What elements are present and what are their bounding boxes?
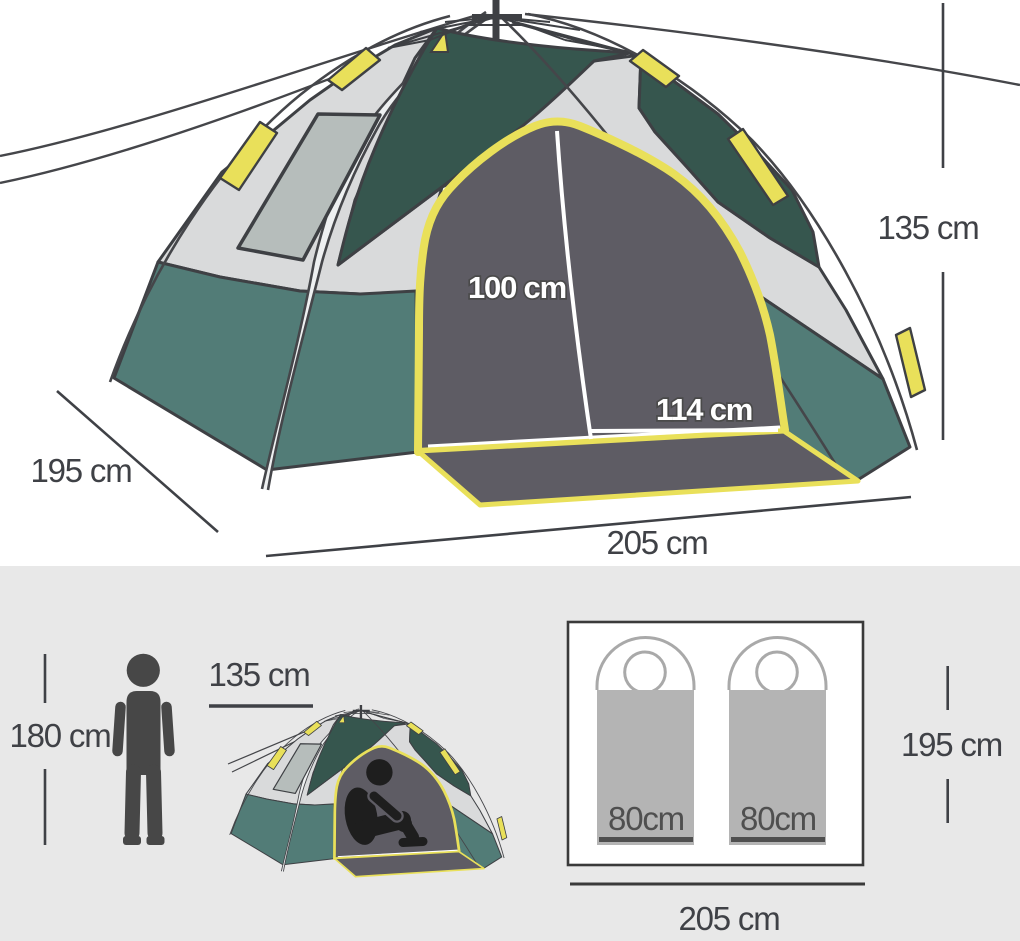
svg-text:114 cm: 114 cm bbox=[656, 392, 752, 427]
svg-text:135 cm: 135 cm bbox=[877, 209, 978, 246]
svg-text:135 cm: 135 cm bbox=[208, 656, 309, 693]
svg-text:80cm: 80cm bbox=[740, 800, 816, 837]
svg-text:205 cm: 205 cm bbox=[606, 524, 707, 561]
svg-text:180 cm: 180 cm bbox=[9, 717, 110, 754]
svg-text:80cm: 80cm bbox=[608, 800, 684, 837]
svg-text:100 cm: 100 cm bbox=[468, 270, 566, 305]
svg-text:195 cm: 195 cm bbox=[901, 726, 1002, 763]
svg-text:205 cm: 205 cm bbox=[678, 900, 779, 937]
svg-text:195 cm: 195 cm bbox=[30, 452, 131, 489]
